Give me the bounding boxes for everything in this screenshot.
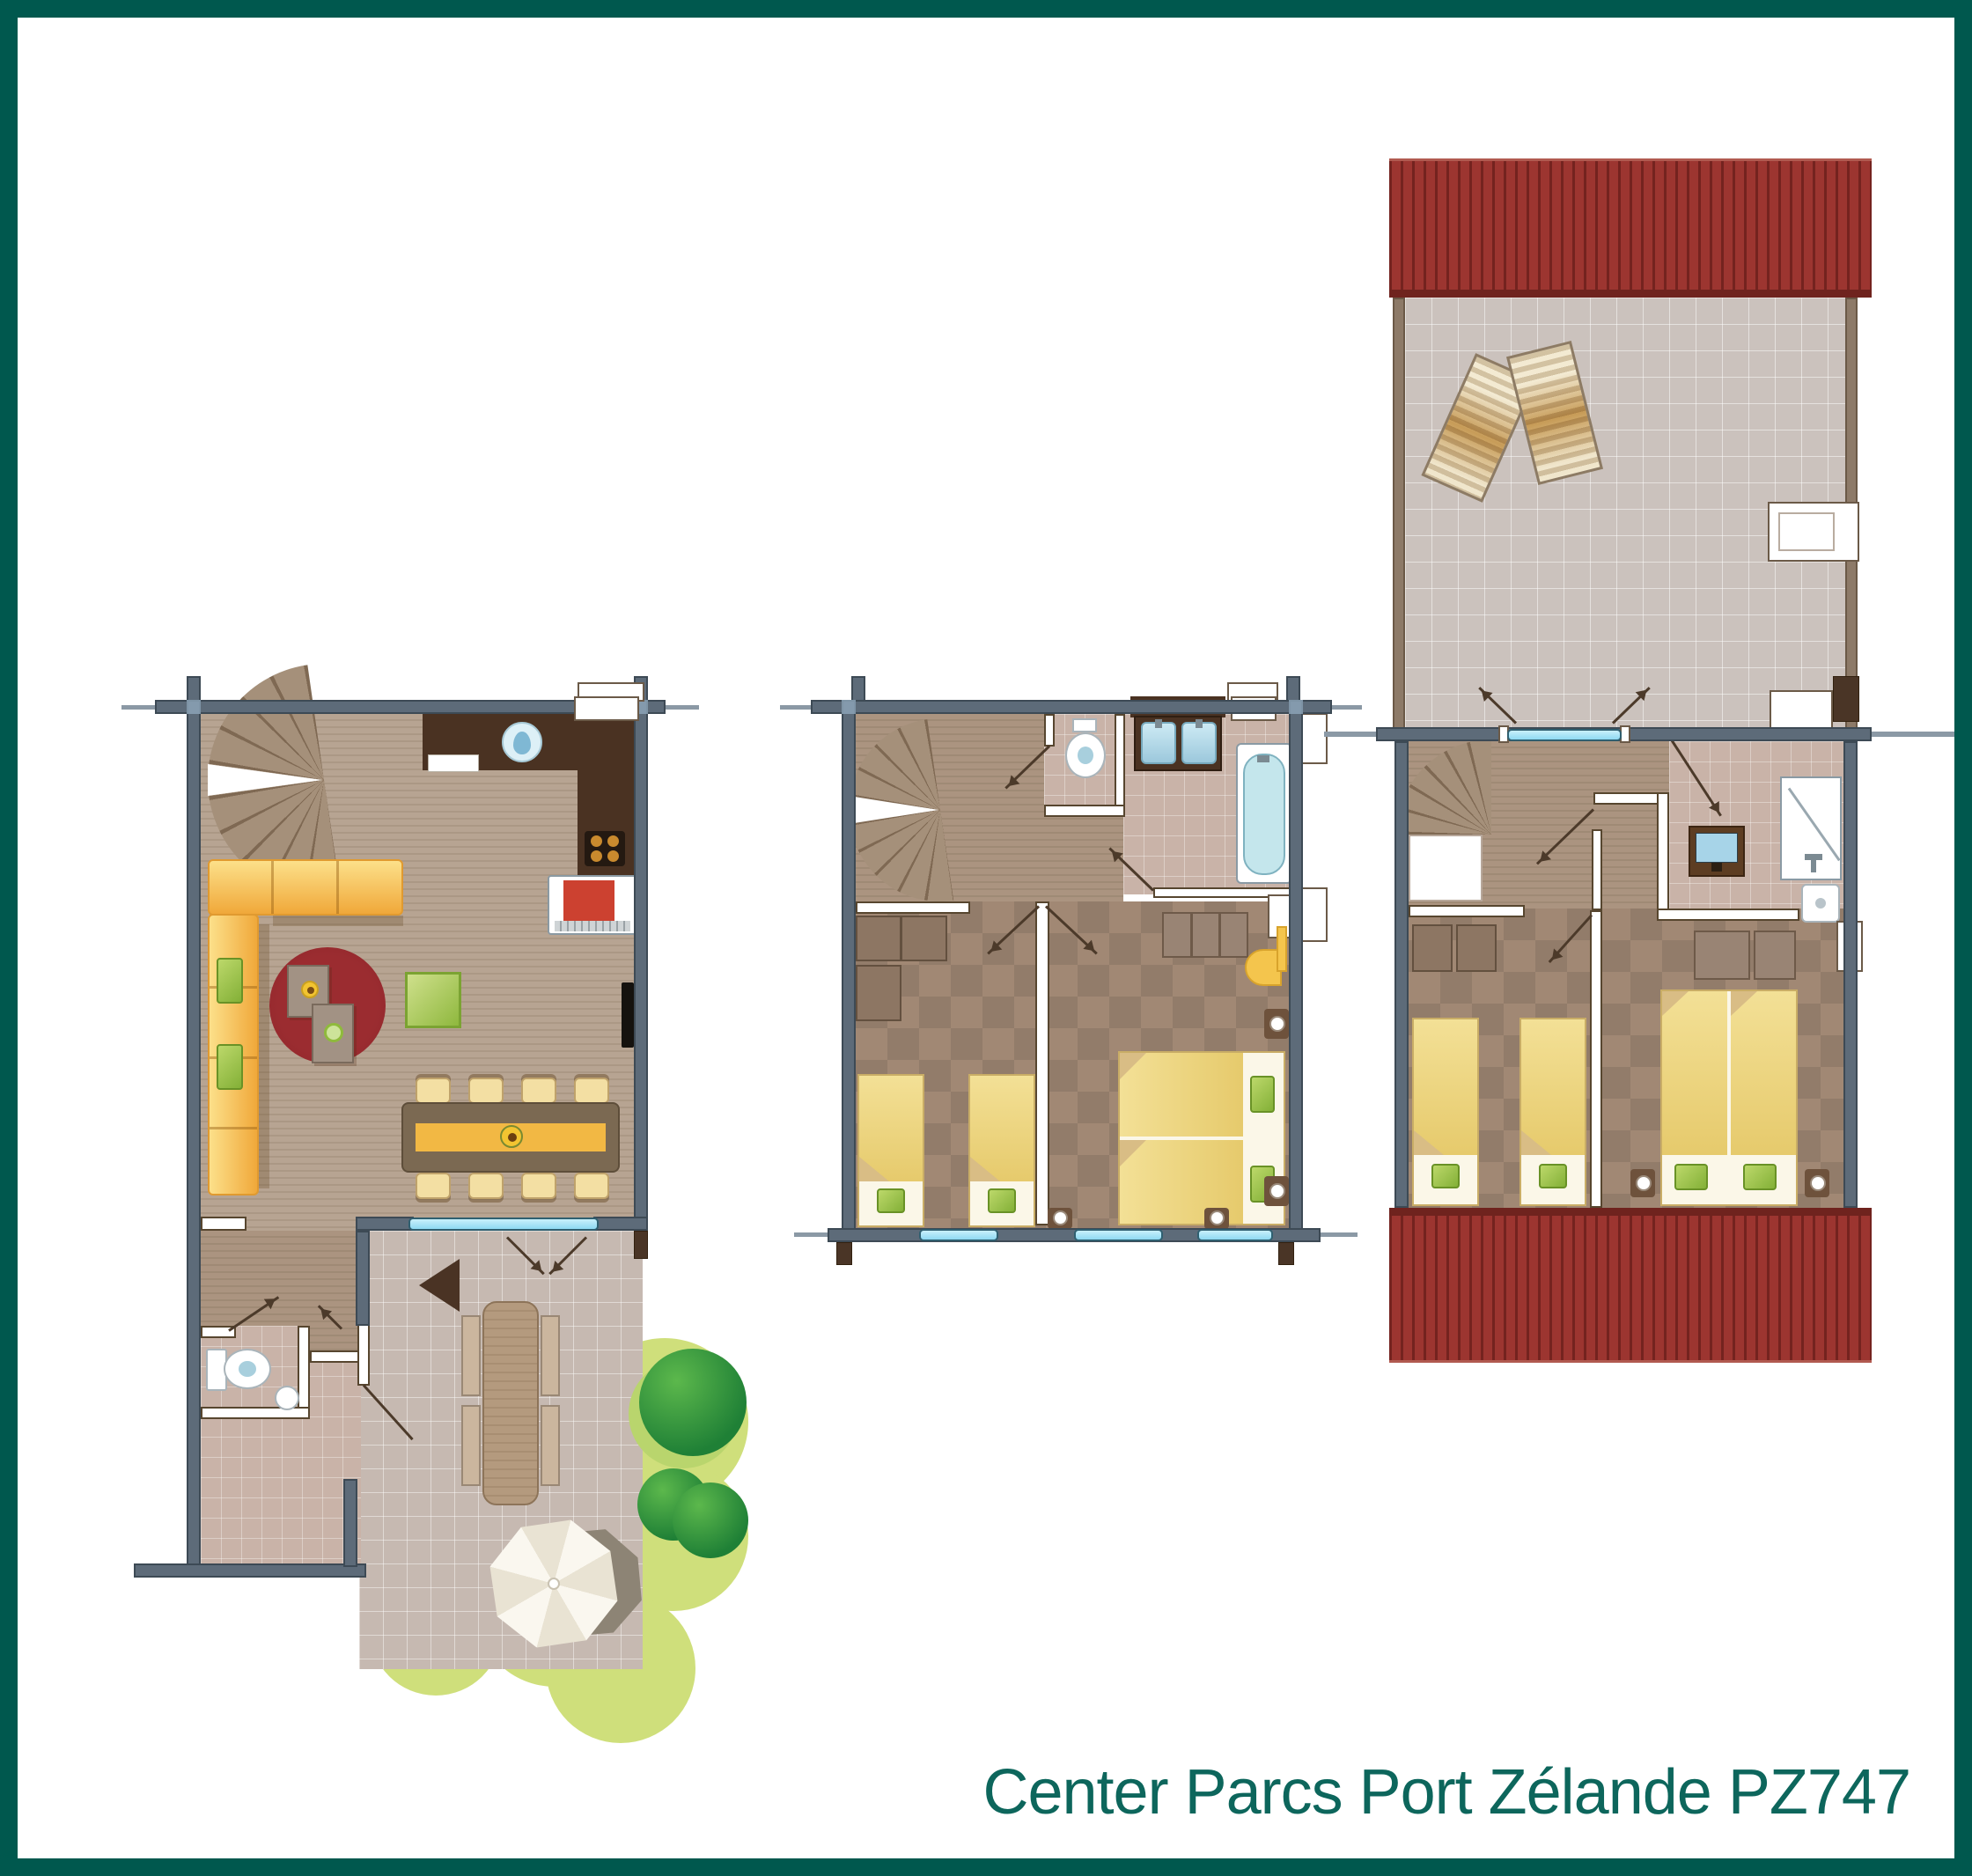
staircase-landing xyxy=(1409,835,1483,901)
wardrobe xyxy=(1694,931,1750,980)
wall-right xyxy=(1843,741,1858,1208)
floorplan-sheet: Center Parcs Port Zélande PZ747 xyxy=(0,0,1972,1876)
pillow-cushion xyxy=(1539,1164,1567,1188)
bedroom-wall xyxy=(1409,905,1525,917)
single-bed xyxy=(1412,1018,1479,1206)
pillow-cushion xyxy=(1431,1164,1460,1188)
pillow-cushion xyxy=(1743,1164,1777,1190)
plan-caption: Center Parcs Port Zélande PZ747 xyxy=(982,1756,1910,1828)
wardrobe xyxy=(1456,924,1497,972)
skylight-pane xyxy=(1778,512,1835,551)
bedside-lamp xyxy=(1810,1175,1826,1191)
wall-cap xyxy=(1833,676,1859,722)
duvet-fold xyxy=(1731,991,1757,1016)
duvet-fold xyxy=(1521,1130,1551,1155)
balcony-door xyxy=(1507,729,1622,741)
roof-section xyxy=(1389,1208,1872,1363)
bedside-lamp xyxy=(1636,1175,1652,1191)
wall-left xyxy=(1394,741,1409,1208)
duvet-fold xyxy=(1414,1130,1444,1155)
second-floor-plan xyxy=(18,18,1954,1858)
door-leaf xyxy=(1592,829,1602,910)
tv-stand xyxy=(1711,863,1722,872)
single-bed xyxy=(1519,1018,1586,1206)
wardrobe xyxy=(1754,931,1796,980)
bathroom-wall xyxy=(1657,792,1669,921)
wardrobe xyxy=(1412,924,1453,972)
pillow-cushion xyxy=(1674,1164,1708,1190)
shower-pipe xyxy=(1811,860,1816,872)
tv-screen xyxy=(1696,833,1738,863)
basin-drain xyxy=(1815,898,1826,909)
terrace-wall xyxy=(1393,298,1405,734)
roof-section xyxy=(1389,158,1872,298)
bathroom-wall xyxy=(1657,909,1799,921)
duvet-fold xyxy=(1662,991,1689,1016)
shower-head xyxy=(1805,854,1822,860)
double-bed xyxy=(1660,989,1798,1206)
bedroom-divider-wall xyxy=(1590,910,1602,1208)
